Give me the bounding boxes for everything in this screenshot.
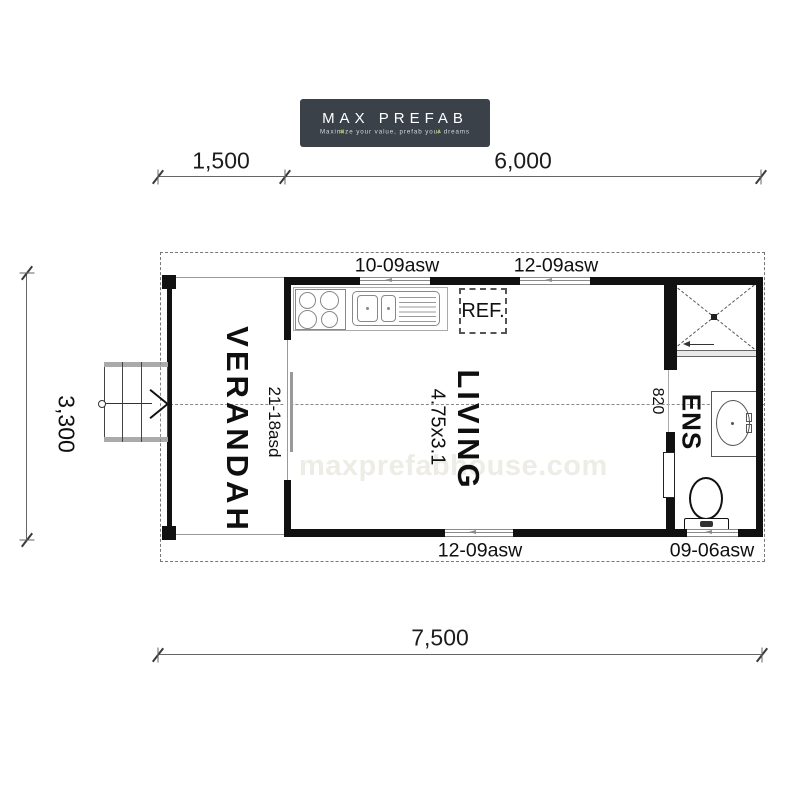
logo-title: MAX PREFAB (322, 111, 468, 126)
window-top-left (360, 277, 430, 285)
verandah-post (162, 526, 176, 540)
window-label-top-left: 10-09asw (355, 255, 440, 278)
logo-accent-icon (340, 129, 344, 133)
window-label-bottom-middle: 12-09asw (438, 540, 523, 563)
shower-screen (673, 350, 756, 357)
window-label-top-right: 12-09asw (514, 255, 599, 278)
floor-plan-canvas: maxprefabhouse.com MAX PREFAB Maximize y… (0, 0, 787, 787)
window-bottom-middle (445, 529, 513, 537)
verandah-top-beam (176, 277, 284, 278)
verandah-bottom-beam (176, 534, 284, 535)
dim-label-left: 3,300 (53, 395, 80, 453)
ens-partition-upper (664, 285, 677, 370)
stair-start-circle (98, 400, 106, 408)
dim-label-bottom: 7,500 (411, 625, 469, 652)
dim-label-top-right: 6,000 (494, 148, 552, 175)
wall-east (756, 277, 763, 537)
door-label-sliding: 21-18asd (264, 387, 284, 458)
door-label-ens-width: 820 (648, 388, 666, 415)
dim-label-top-left: 1,500 (192, 148, 250, 175)
window-top-right (520, 277, 590, 285)
room-label-ens: ENS (676, 394, 707, 450)
window-bottom-right (687, 529, 738, 537)
window-label-bottom-right: 09-06asw (670, 540, 755, 563)
logo-accent-icon (437, 129, 441, 133)
verandah-post (162, 275, 176, 289)
room-label-verandah: VERANDAH (219, 326, 255, 534)
shower-drain (711, 314, 717, 320)
fridge-label: REF. (461, 300, 504, 323)
fridge-box: REF. (459, 288, 507, 334)
shower-entry-arrow (683, 341, 690, 347)
drainer-symbol (399, 297, 436, 323)
brand-logo: MAX PREFAB Maximize your value, prefab y… (300, 99, 490, 147)
room-size-living: 4.75x3.1 (426, 389, 449, 466)
room-label-living: LIVING (450, 369, 486, 490)
